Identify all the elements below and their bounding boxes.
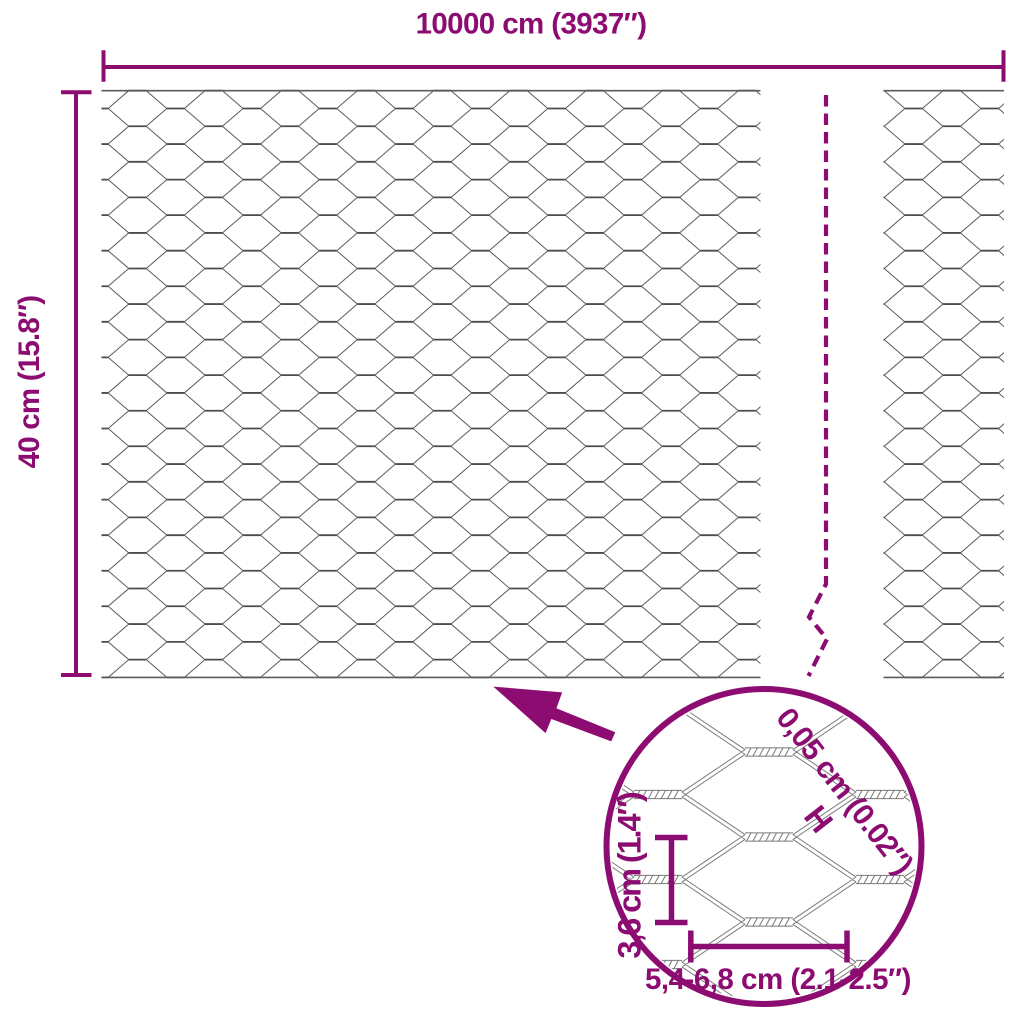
svg-text:40 cm (15.8″): 40 cm (15.8″): [13, 296, 46, 469]
svg-text:3,6 cm (1.4″): 3,6 cm (1.4″): [612, 792, 648, 959]
svg-text:10000 cm (3937″): 10000 cm (3937″): [416, 8, 647, 41]
svg-text:5,4-6,8 cm (2.1-2.5″): 5,4-6,8 cm (2.1-2.5″): [645, 963, 911, 996]
